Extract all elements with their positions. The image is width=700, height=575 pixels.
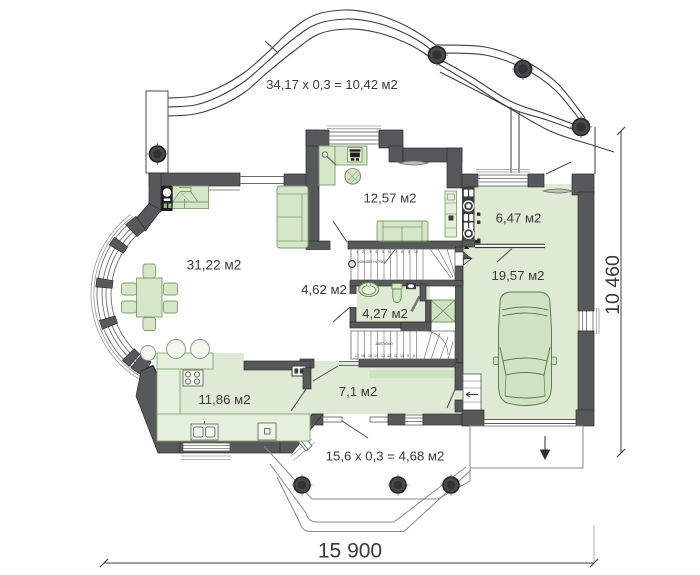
svg-text:9: 9 <box>407 354 409 358</box>
svg-text:10 460: 10 460 <box>602 255 624 315</box>
svg-text:13: 13 <box>381 354 385 358</box>
svg-text:11: 11 <box>394 354 398 358</box>
svg-text:19,57 м2: 19,57 м2 <box>491 268 544 283</box>
svg-text:4,62 м2: 4,62 м2 <box>301 282 347 297</box>
svg-text:8: 8 <box>413 354 415 358</box>
svg-text:1: 1 <box>356 250 358 254</box>
svg-text:2: 2 <box>362 250 364 254</box>
svg-text:4: 4 <box>375 250 377 254</box>
svg-text:7: 7 <box>395 250 397 254</box>
svg-text:7,1 м2: 7,1 м2 <box>339 384 377 399</box>
svg-text:11,86 м2: 11,86 м2 <box>198 392 250 407</box>
svg-text:15 900: 15 900 <box>318 540 382 563</box>
svg-text:4,27 м2: 4,27 м2 <box>362 306 408 321</box>
svg-text:5: 5 <box>382 250 384 254</box>
svg-text:165x300+4.750: 165x300+4.750 <box>357 259 385 264</box>
svg-text:34,17 x 0,3 = 10,42 м2: 34,17 x 0,3 = 10,42 м2 <box>266 77 397 92</box>
svg-text:12,57 м2: 12,57 м2 <box>363 191 416 206</box>
svg-text:6,47 м2: 6,47 м2 <box>496 211 542 226</box>
svg-text:12: 12 <box>387 354 391 358</box>
svg-text:10: 10 <box>400 354 404 358</box>
svg-text:14: 14 <box>374 354 378 358</box>
svg-text:17: 17 <box>355 354 359 358</box>
svg-text:15: 15 <box>368 354 372 358</box>
svg-text:3: 3 <box>369 250 371 254</box>
svg-text:31,22 м2: 31,22 м2 <box>187 258 242 273</box>
svg-text:8: 8 <box>401 250 403 254</box>
svg-text:15,6 x 0,3 = 4,68 м2: 15,6 x 0,3 = 4,68 м2 <box>326 449 445 464</box>
svg-text:9: 9 <box>408 250 410 254</box>
svg-text:16: 16 <box>361 354 365 358</box>
svg-text:6: 6 <box>388 250 390 254</box>
svg-text:1687x300: 1687x300 <box>375 341 393 346</box>
svg-text:10: 10 <box>414 250 418 254</box>
